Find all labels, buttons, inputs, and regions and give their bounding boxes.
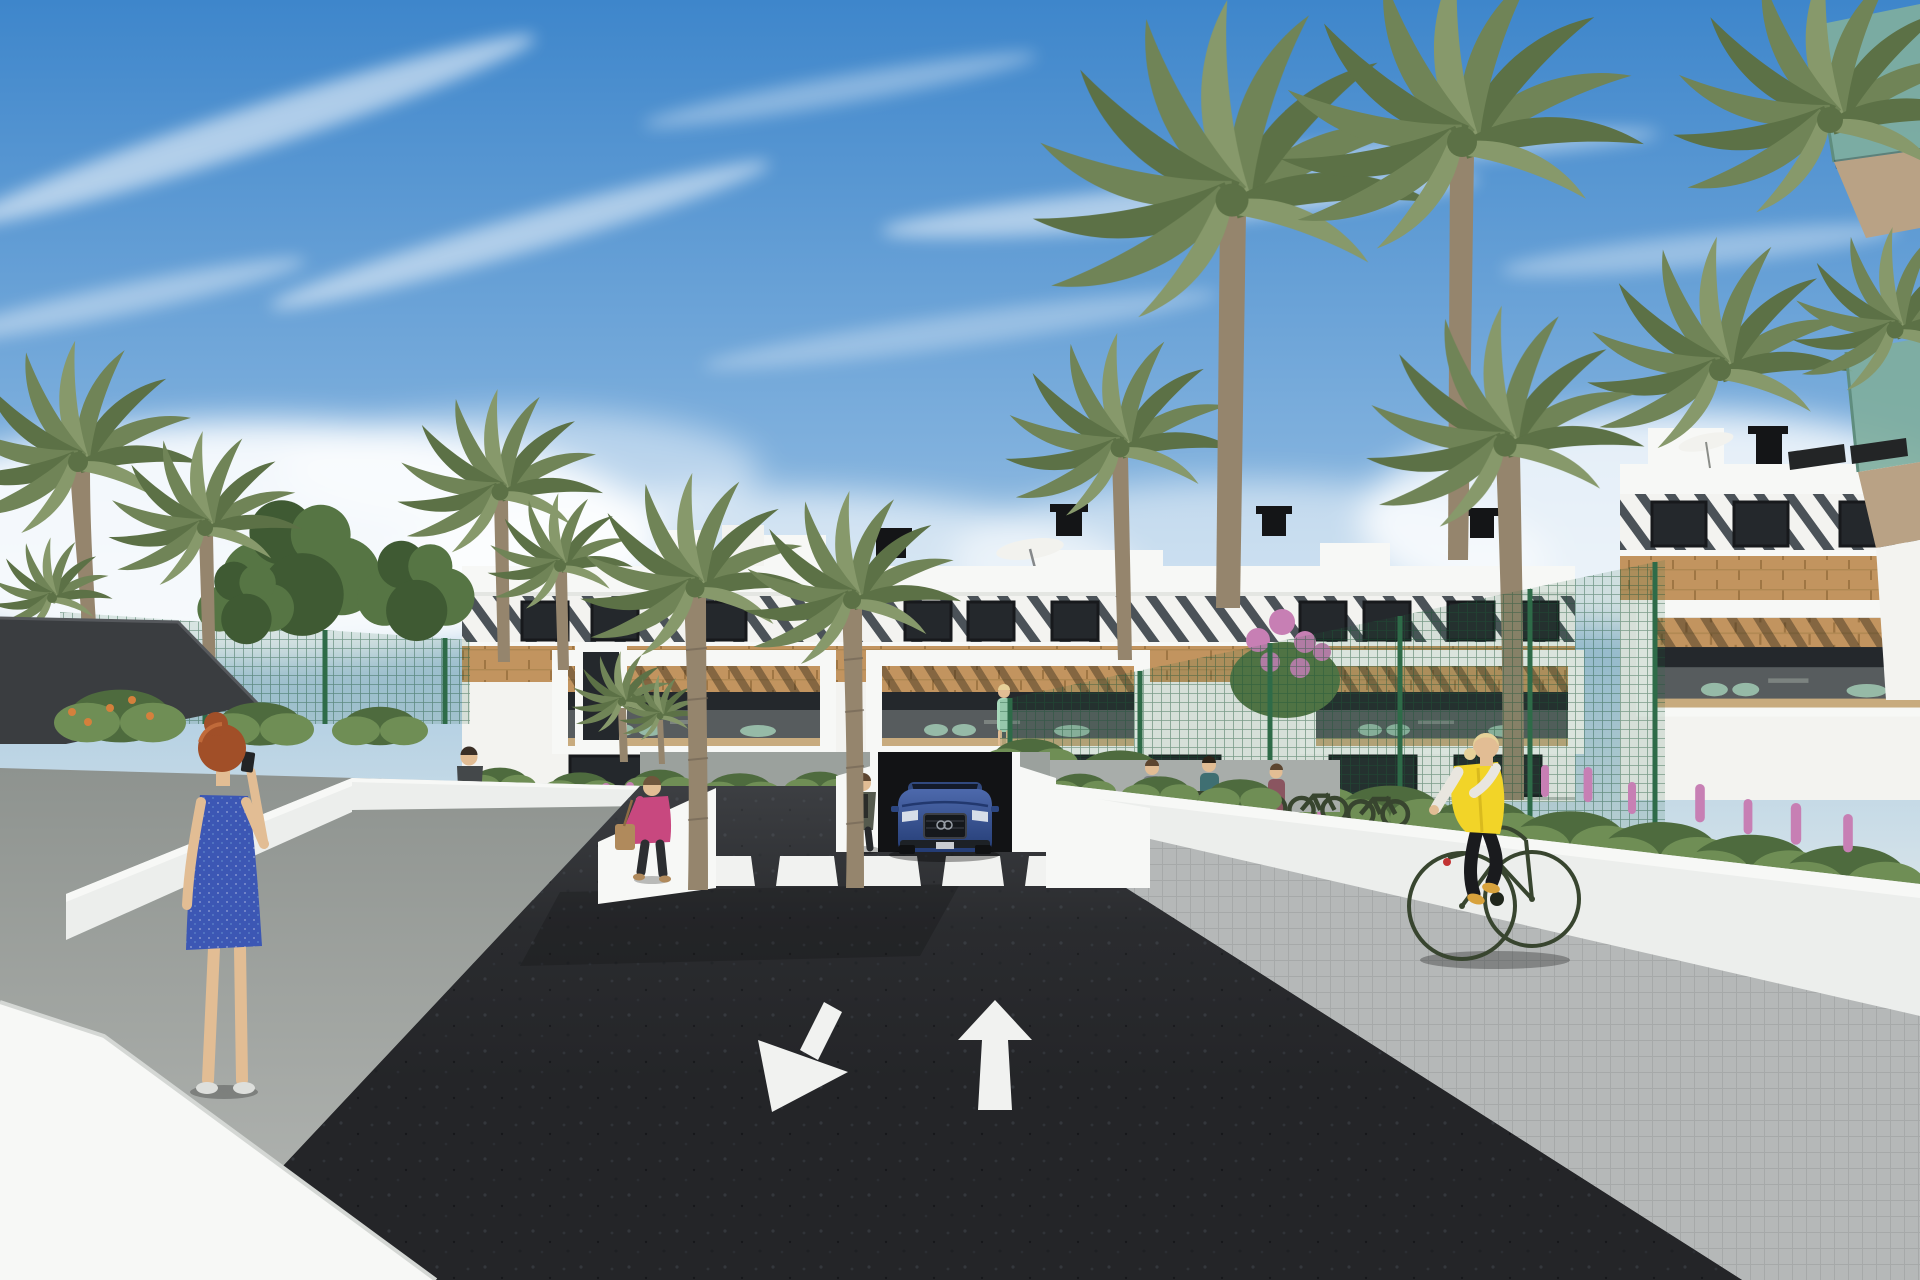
render-stage: 3D architectural rendering of a modern w…	[0, 0, 1920, 1280]
scene-render	[0, 0, 1920, 1280]
blue-suv	[889, 782, 999, 862]
wall-shadow-on-road	[520, 884, 960, 966]
